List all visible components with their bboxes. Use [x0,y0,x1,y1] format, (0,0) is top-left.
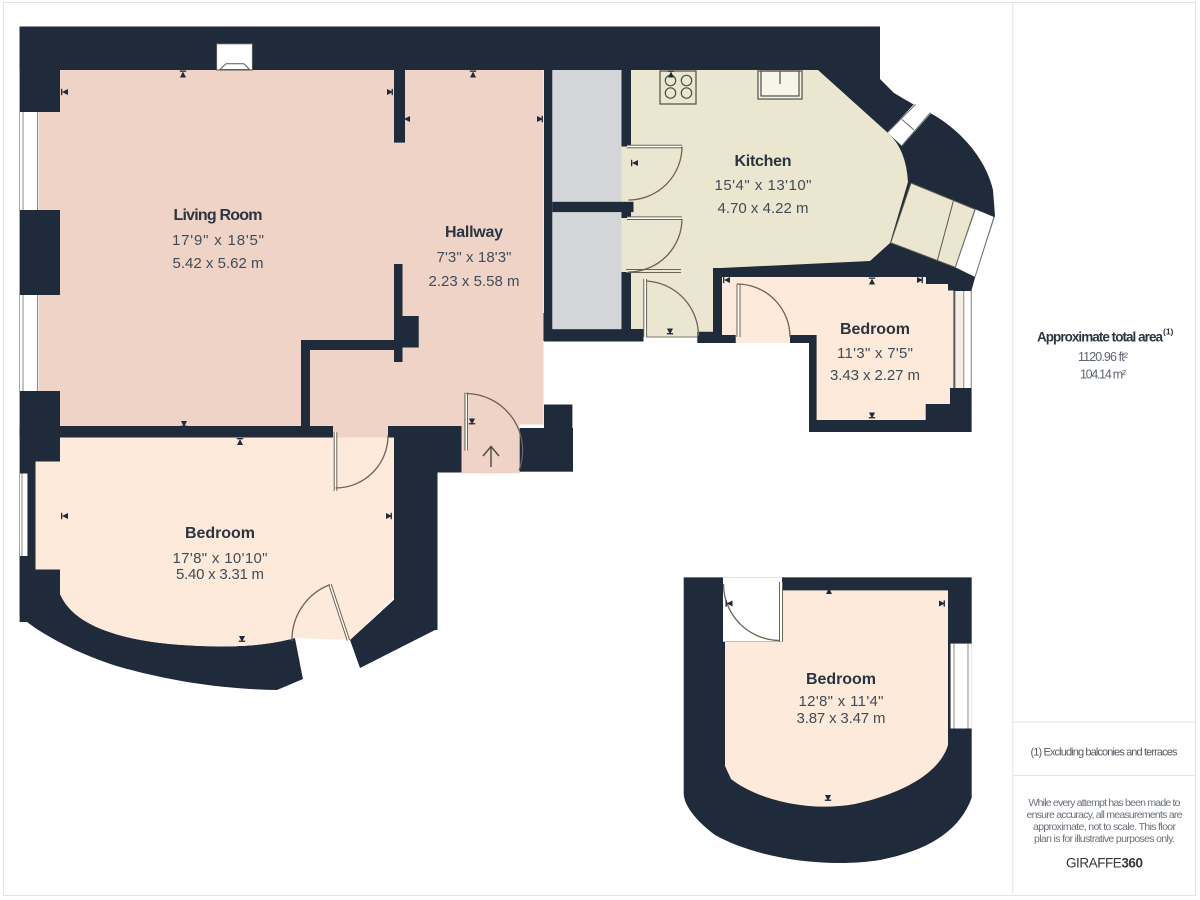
svg-text:While every attempt has been m: While every attempt has been made to [1029,797,1181,809]
svg-text:5.42 x 5.62 m: 5.42 x 5.62 m [173,255,264,272]
svg-text:GIRAFFE360: GIRAFFE360 [1066,856,1143,871]
svg-text:plan is for illustrative purpo: plan is for illustrative purposes only. [1034,833,1175,845]
svg-text:Kitchen: Kitchen [735,153,792,170]
svg-text:Living Room: Living Room [174,207,263,224]
svg-text:Bedroom: Bedroom [840,321,910,338]
svg-text:17'8" x 10'10": 17'8" x 10'10" [173,550,268,567]
svg-text:3.87 x 3.47 m: 3.87 x 3.47 m [797,710,886,727]
svg-text:7'3" x 18'3": 7'3" x 18'3" [437,249,512,266]
svg-text:ensure accuracy, all measureme: ensure accuracy, all measurements are [1027,809,1183,821]
svg-text:104.14 m²: 104.14 m² [1080,368,1126,382]
svg-text:Bedroom: Bedroom [806,671,876,688]
svg-text:2.23 x 5.58 m: 2.23 x 5.58 m [429,273,520,290]
svg-text:Hallway: Hallway [445,224,503,241]
svg-text:approximate, not to scale. Thi: approximate, not to scale. This floor [1033,821,1177,833]
svg-text:15'4" x 13'10": 15'4" x 13'10" [715,177,812,194]
svg-text:1120.96 ft²: 1120.96 ft² [1078,350,1128,364]
svg-text:4.70 x 4.22 m: 4.70 x 4.22 m [718,200,809,217]
svg-text:Bedroom: Bedroom [185,525,255,542]
svg-text:(1) Excluding balconies and te: (1) Excluding balconies and terraces [1031,747,1179,759]
svg-text:(1): (1) [1163,327,1174,337]
svg-text:11'3" x 7'5": 11'3" x 7'5" [837,345,913,362]
svg-text:17'9" x 18'5": 17'9" x 18'5" [172,232,264,249]
svg-text:5.40 x 3.31 m: 5.40 x 3.31 m [176,566,264,583]
svg-text:12'8" x 11'4": 12'8" x 11'4" [799,693,884,710]
svg-text:3.43 x 2.27 m: 3.43 x 2.27 m [830,367,920,384]
svg-text:Approximate total area: Approximate total area [1037,330,1163,345]
